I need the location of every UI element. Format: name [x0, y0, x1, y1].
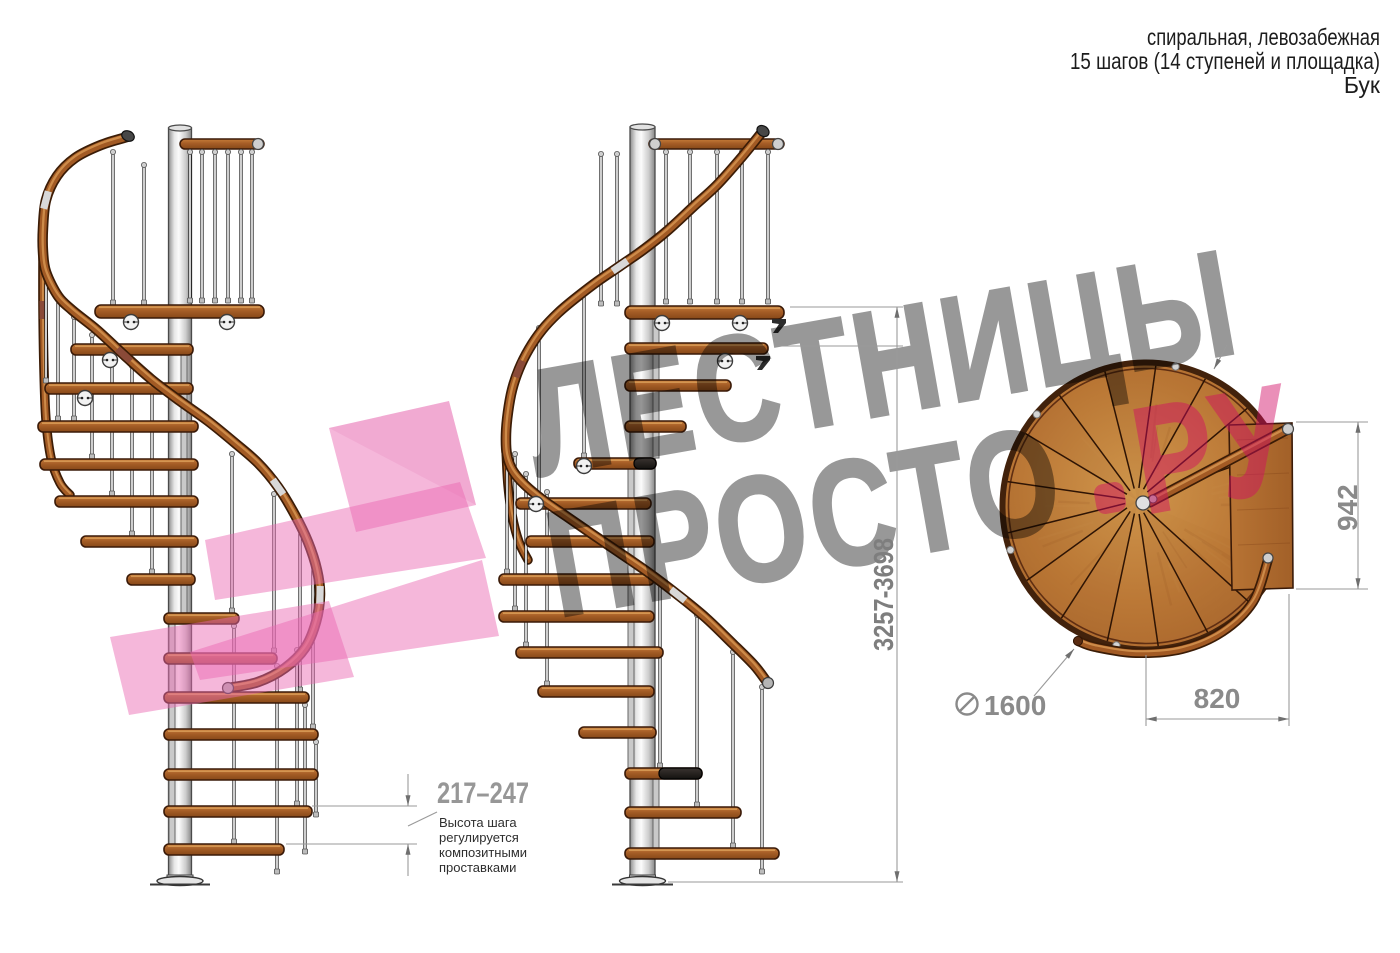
svg-text:3257-3698: 3257-3698	[868, 538, 899, 651]
svg-text:проставками: проставками	[439, 860, 516, 875]
svg-text:РУ: РУ	[1121, 352, 1306, 545]
svg-text:Бук: Бук	[1344, 72, 1381, 98]
svg-text:Высота шага: Высота шага	[439, 815, 517, 830]
svg-text:820: 820	[1194, 683, 1241, 714]
svg-text:217–247: 217–247	[437, 777, 529, 810]
svg-text:регулируется: регулируется	[439, 830, 519, 845]
svg-text:942: 942	[1332, 484, 1363, 531]
svg-text:1600: 1600	[984, 690, 1046, 721]
svg-text:спиральная, левозабежная: спиральная, левозабежная	[1147, 24, 1380, 50]
svg-text:15 шагов (14 ступеней и площад: 15 шагов (14 ступеней и площадка)	[1070, 48, 1380, 74]
svg-text:композитными: композитными	[439, 845, 527, 860]
